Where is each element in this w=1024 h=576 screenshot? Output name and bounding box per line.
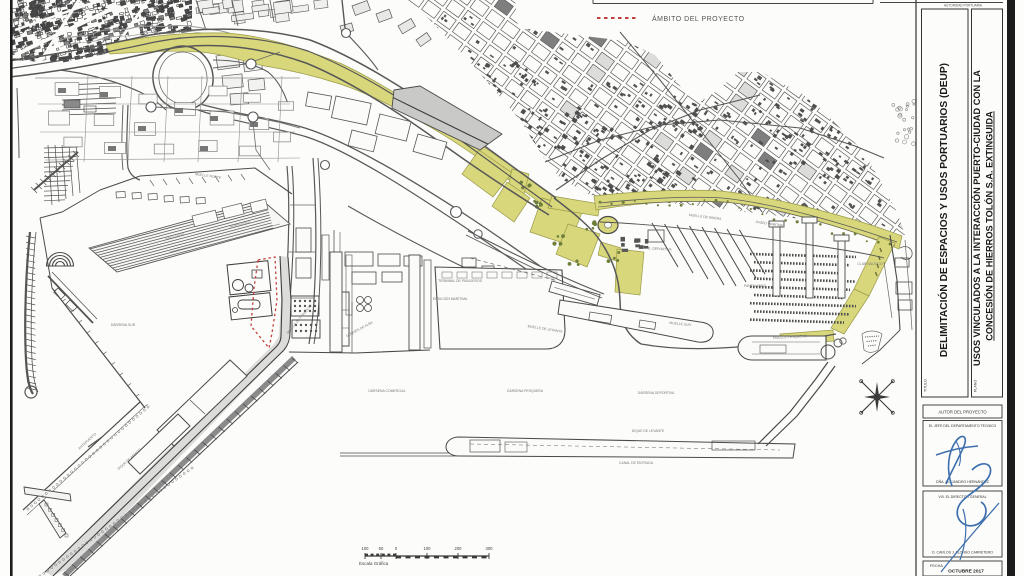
svg-text:100: 100	[362, 546, 370, 551]
svg-text:DÁRSENA DEPORTIVA: DÁRSENA DEPORTIVA	[638, 391, 675, 395]
svg-text:PLANO: PLANO	[974, 380, 978, 392]
svg-text:PANTALANES: PANTALANES	[744, 284, 767, 288]
svg-text:DÁRSENA SUR: DÁRSENA SUR	[111, 323, 136, 327]
svg-text:DÁRSENA COMERCIAL: DÁRSENA COMERCIAL	[368, 389, 405, 393]
svg-text:EL JEFE DEL DEPARTAMENTO TÉCNI: EL JEFE DEL DEPARTAMENTO TÉCNICO	[929, 423, 997, 428]
svg-text:TITULO: TITULO	[924, 379, 928, 392]
svg-text:CLUB NÁUTICO: CLUB NÁUTICO	[857, 262, 883, 266]
svg-text:DÑA. ALEJANDRO HERNÁNDEZ: DÑA. ALEJANDRO HERNÁNDEZ	[936, 479, 990, 484]
svg-text:ESTACIÓN MARÍTIMA: ESTACIÓN MARÍTIMA	[433, 296, 468, 301]
svg-text:ÁMBITO DEL PROYECTO: ÁMBITO DEL PROYECTO	[652, 14, 745, 23]
svg-text:FECHA: FECHA	[930, 564, 943, 568]
svg-text:CONCESIÓN DE HIERROS TOLÓN S.A: CONCESIÓN DE HIERROS TOLÓN S.A. EXTINGUI…	[984, 111, 995, 341]
svg-text:V.B. EL DIRECTOR GENERAL: V.B. EL DIRECTOR GENERAL	[938, 495, 986, 499]
svg-text:100: 100	[424, 546, 432, 551]
svg-text:USOS VINCULADOS A LA INTERACCI: USOS VINCULADOS A LA INTERACCIÓN PUERTO-…	[971, 70, 982, 366]
svg-text:TERMINAL DE PASAJEROS: TERMINAL DE PASAJEROS	[438, 279, 482, 283]
svg-text:OCTUBRE 2017: OCTUBRE 2017	[948, 569, 984, 575]
svg-text:DIQUE DE LEVANTE: DIQUE DE LEVANTE	[632, 429, 665, 433]
svg-text:Escala Gráfica: Escala Gráfica	[359, 561, 389, 566]
svg-text:CANAL DE ENTRADA: CANAL DE ENTRADA	[619, 461, 654, 465]
svg-text:AUTORIDAD PORTUARIA: AUTORIDAD PORTUARIA	[944, 4, 983, 8]
svg-text:DÁRSENA PESQUERA: DÁRSENA PESQUERA	[507, 389, 544, 393]
svg-text:DELIMITACIÓN DE ESPACIOS Y USO: DELIMITACIÓN DE ESPACIOS Y USOS PORTUARI…	[937, 63, 950, 357]
svg-text:200: 200	[455, 546, 463, 551]
svg-text:50: 50	[379, 546, 384, 551]
svg-text:300: 300	[486, 546, 494, 551]
svg-text:AUTOR DEL PROYECTO: AUTOR DEL PROYECTO	[938, 410, 987, 415]
